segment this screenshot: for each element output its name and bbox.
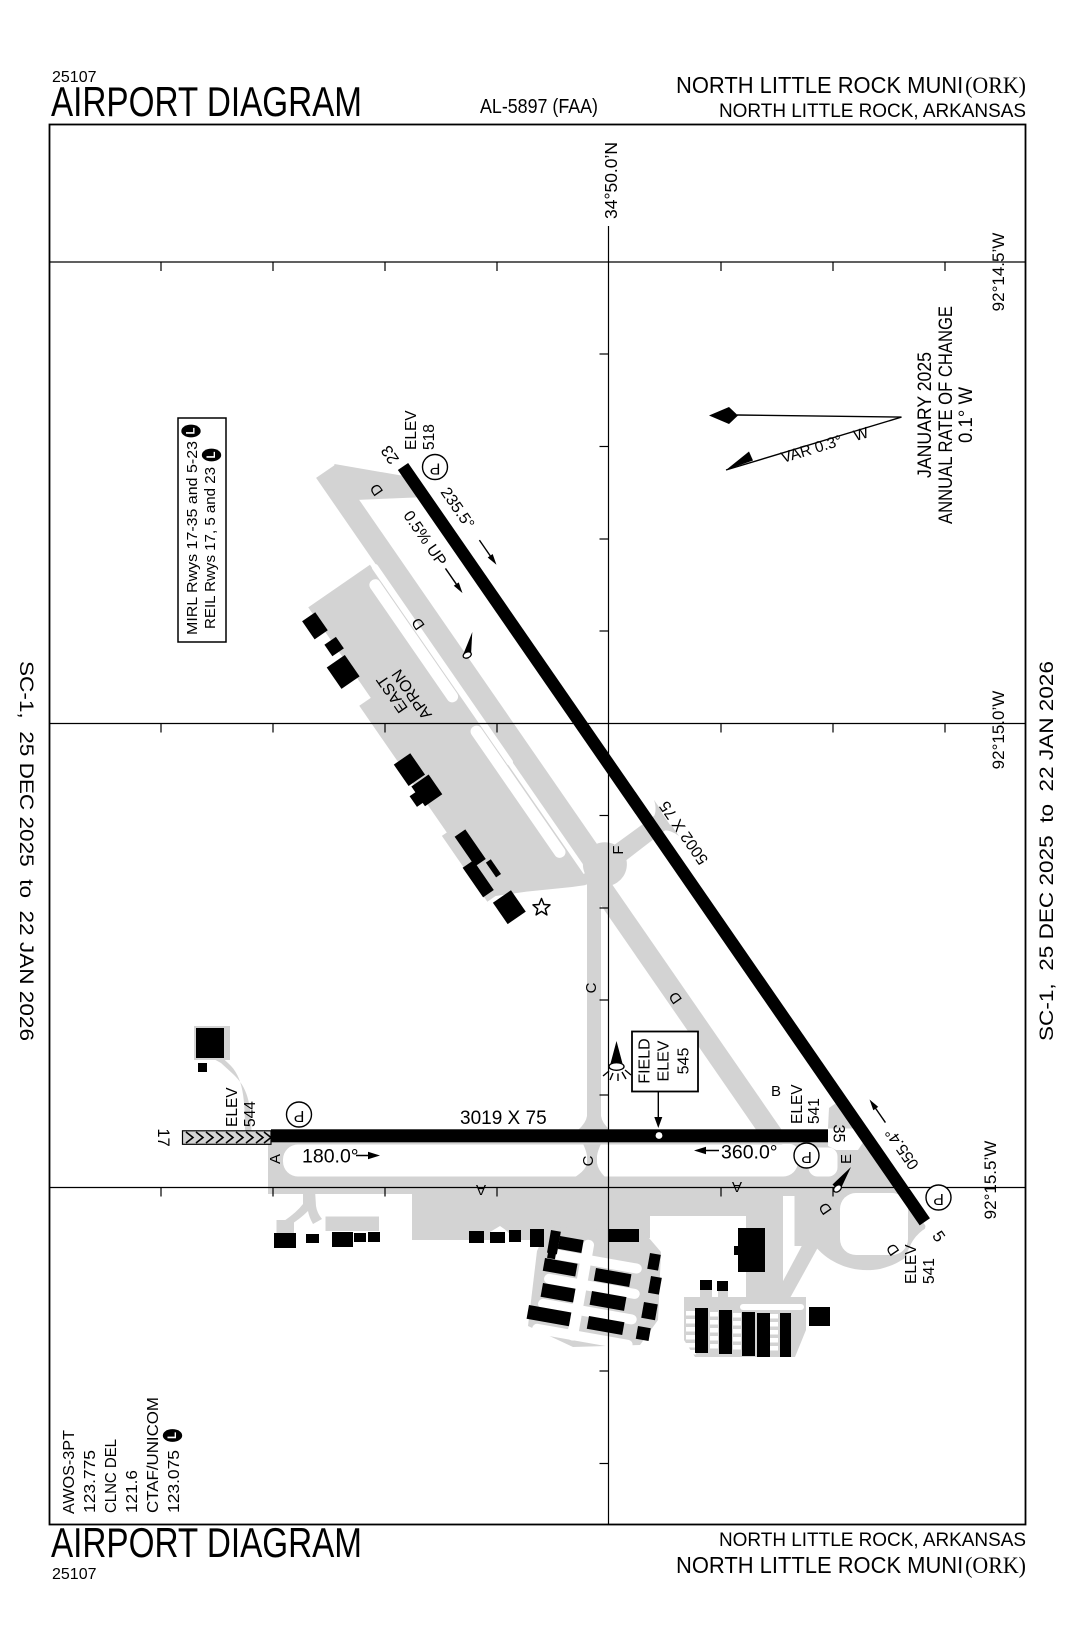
svg-text:NORTH LITTLE ROCK, ARKANSAS: NORTH LITTLE ROCK, ARKANSAS bbox=[719, 101, 1026, 122]
svg-text:A: A bbox=[267, 1154, 284, 1164]
svg-text:L: L bbox=[167, 1432, 179, 1439]
svg-text:541: 541 bbox=[921, 1258, 938, 1284]
svg-text:92°14.5’W: 92°14.5’W bbox=[989, 233, 1008, 312]
svg-text:123.075: 123.075 bbox=[166, 1450, 183, 1513]
svg-text:ANNUAL RATE OF CHANGE: ANNUAL RATE OF CHANGE bbox=[936, 306, 957, 524]
svg-text:544: 544 bbox=[242, 1101, 259, 1127]
svg-text:180.0°: 180.0° bbox=[302, 1146, 359, 1168]
svg-text:0.1° W: 0.1° W bbox=[956, 387, 977, 443]
svg-text:MIRL Rwys 17-35 and 5-23: MIRL Rwys 17-35 and 5-23 bbox=[184, 441, 201, 635]
svg-text:SC-1, 25 DEC 2025 to 22 JAN: SC-1, 25 DEC 2025 to 22 JAN 2026 bbox=[1037, 661, 1058, 1041]
svg-text:ELEV: ELEV bbox=[903, 1244, 920, 1284]
svg-text:92°15.5’W: 92°15.5’W bbox=[981, 1141, 1000, 1220]
svg-text:NORTH LITTLE ROCK MUNI (ORK): NORTH LITTLE ROCK MUNI (ORK) bbox=[676, 1552, 1026, 1578]
svg-text:CLNC DEL: CLNC DEL bbox=[103, 1439, 120, 1513]
svg-text:C: C bbox=[583, 982, 600, 993]
svg-text:L: L bbox=[206, 451, 218, 458]
svg-text:JANUARY 2025: JANUARY 2025 bbox=[915, 352, 936, 478]
svg-text:F: F bbox=[610, 845, 627, 854]
svg-text:123.775: 123.775 bbox=[82, 1450, 99, 1513]
svg-text:B: B bbox=[771, 1083, 781, 1100]
svg-text:121.6: 121.6 bbox=[124, 1470, 141, 1513]
svg-text:ELEV: ELEV bbox=[656, 1040, 673, 1081]
svg-text:35: 35 bbox=[830, 1124, 848, 1142]
svg-text:545: 545 bbox=[676, 1048, 693, 1075]
svg-text:C: C bbox=[580, 1155, 597, 1166]
svg-text:P: P bbox=[933, 1190, 944, 1207]
svg-text:518: 518 bbox=[421, 424, 438, 450]
svg-text:ELEV: ELEV bbox=[224, 1087, 241, 1127]
svg-text:25107: 25107 bbox=[52, 1566, 97, 1583]
svg-text:3019 X 75: 3019 X 75 bbox=[460, 1108, 547, 1129]
svg-text:CTAF/UNICOM: CTAF/UNICOM bbox=[145, 1397, 162, 1513]
svg-text:ELEV: ELEV bbox=[789, 1084, 806, 1124]
svg-text:E: E bbox=[838, 1154, 855, 1164]
svg-text:541: 541 bbox=[806, 1098, 823, 1124]
svg-text:P: P bbox=[294, 1107, 305, 1124]
svg-text:17: 17 bbox=[154, 1128, 172, 1146]
svg-text:ELEV: ELEV bbox=[403, 410, 420, 450]
svg-text:34°50.0’N: 34°50.0’N bbox=[601, 142, 621, 219]
svg-text:A: A bbox=[732, 1178, 742, 1195]
svg-text:A: A bbox=[476, 1181, 486, 1198]
svg-text:L: L bbox=[186, 427, 198, 434]
svg-text:SC-1, 25 DEC 2025 to 22 JAN: SC-1, 25 DEC 2025 to 22 JAN 2026 bbox=[15, 661, 36, 1041]
svg-text:AWOS-3PT: AWOS-3PT bbox=[61, 1429, 78, 1514]
svg-text:92°15.0’W: 92°15.0’W bbox=[989, 691, 1008, 770]
svg-text:NORTH LITTLE ROCK, ARKANSAS: NORTH LITTLE ROCK, ARKANSAS bbox=[719, 1530, 1026, 1551]
svg-text:360.0°: 360.0° bbox=[721, 1142, 778, 1164]
svg-text:P: P bbox=[801, 1148, 812, 1165]
svg-text:P: P bbox=[430, 459, 441, 476]
svg-text:NORTH LITTLE ROCK MUNI (ORK): NORTH LITTLE ROCK MUNI (ORK) bbox=[676, 72, 1026, 98]
svg-text:AL-5897 (FAA): AL-5897 (FAA) bbox=[480, 96, 598, 118]
svg-text:FIELD: FIELD bbox=[637, 1038, 654, 1083]
svg-text:AIRPORT DIAGRAM: AIRPORT DIAGRAM bbox=[51, 1519, 362, 1566]
svg-text:AIRPORT DIAGRAM: AIRPORT DIAGRAM bbox=[51, 78, 362, 125]
svg-text:REIL Rwys 17, 5 and 23: REIL Rwys 17, 5 and 23 bbox=[202, 467, 219, 629]
